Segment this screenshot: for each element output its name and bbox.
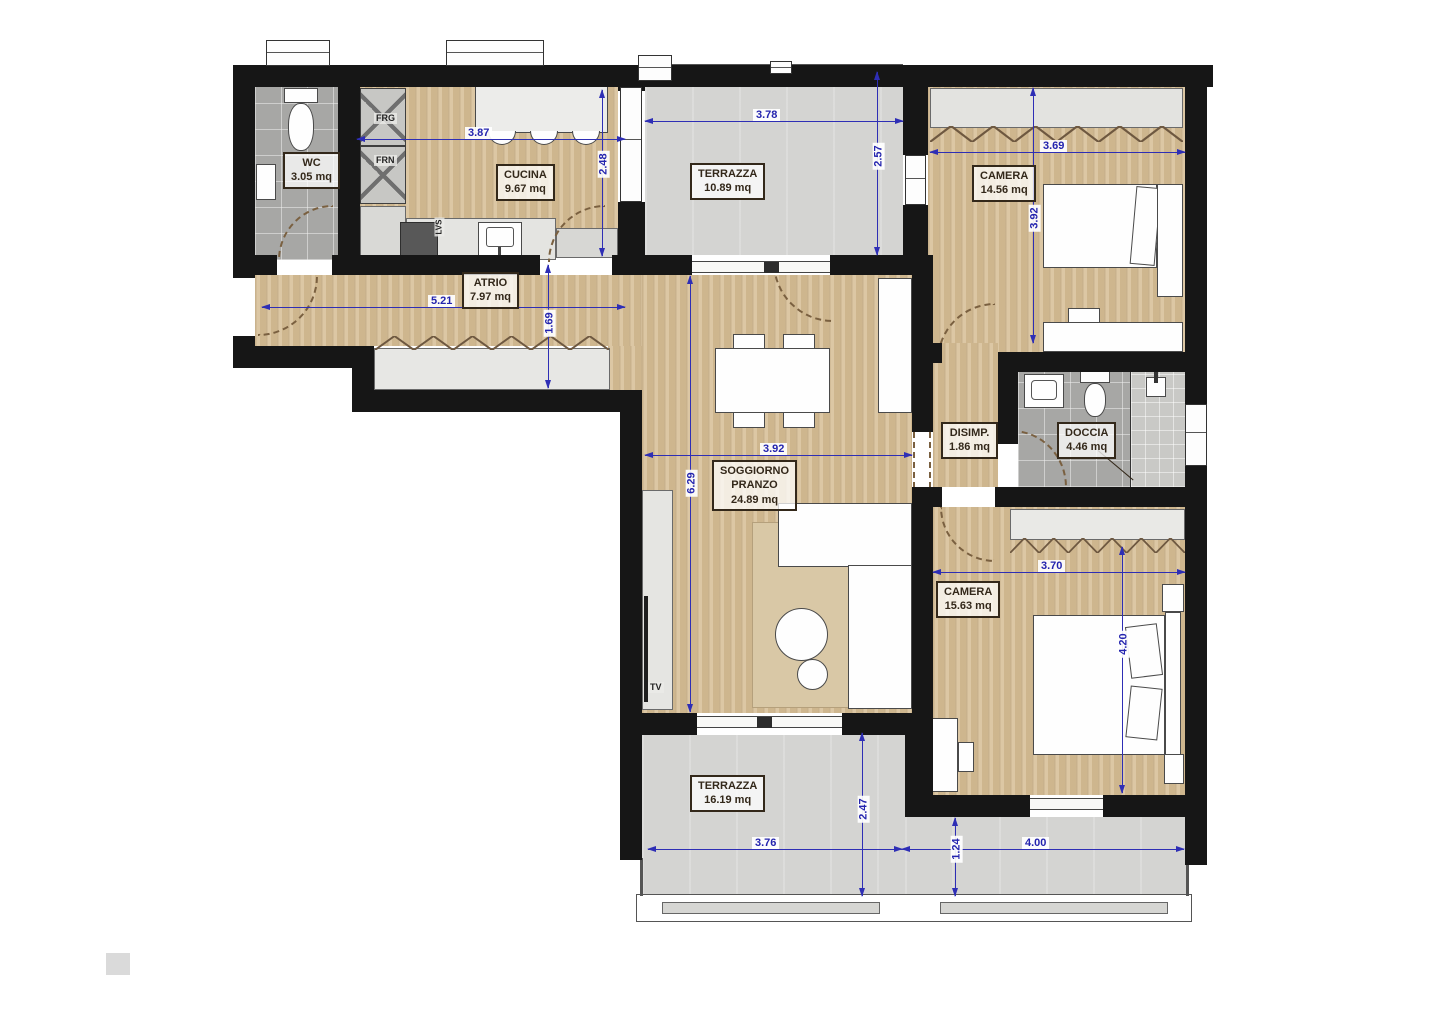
- room-label-soggiorno: SOGGIORNO PRANZO 24.89 mq: [712, 460, 797, 511]
- room-name: DOCCIA: [1065, 427, 1108, 439]
- wall: [903, 85, 928, 155]
- dim-label: 2.57: [873, 142, 885, 169]
- room-area: 15.63 mq: [945, 600, 992, 612]
- opening-disimpegno: [913, 432, 915, 488]
- wall: [618, 202, 645, 275]
- wall: [998, 352, 1188, 372]
- dim-line: [262, 307, 625, 308]
- dim-label: 3.87: [465, 127, 492, 139]
- wall: [338, 85, 360, 275]
- wall: [912, 488, 933, 735]
- headboard: [1165, 612, 1181, 758]
- railing-post: [640, 858, 643, 896]
- wall: [620, 713, 697, 735]
- dim-line: [645, 455, 912, 456]
- toilet-bowl: [288, 103, 314, 151]
- room-name: ATRIO: [474, 277, 507, 289]
- wall: [233, 65, 1213, 87]
- wall: [620, 390, 642, 860]
- room-name: DISIMP.: [950, 427, 990, 439]
- dim-label: 3.92: [760, 443, 787, 455]
- room-label-atrio: ATRIO 7.97 mq: [462, 272, 519, 309]
- dim-label: 1.24: [951, 835, 963, 862]
- dim-label: 6.29: [686, 469, 698, 496]
- dim-line: [645, 121, 903, 122]
- room-label-terrazza-nord: TERRAZZA 10.89 mq: [690, 163, 765, 200]
- wall: [233, 65, 255, 278]
- glass-door-terrazza-nord: [692, 261, 830, 273]
- dim-label: 4.00: [1022, 837, 1049, 849]
- tv-label: TV: [648, 682, 664, 693]
- oven-label: FRN: [374, 155, 397, 166]
- room-name: WC: [302, 157, 320, 169]
- wall: [995, 487, 1188, 507]
- room-name: TERRAZZA: [698, 168, 757, 180]
- terrazza-sud-floor: [642, 735, 912, 896]
- dim-label: 3.69: [1040, 140, 1067, 152]
- dim-label: 3.78: [753, 109, 780, 121]
- room-name: PRANZO: [731, 479, 777, 491]
- room-name: CAMERA: [980, 170, 1028, 182]
- dim-label: 5.21: [428, 295, 455, 307]
- kitchen-bar-counter: [475, 85, 608, 133]
- cooktop: [400, 222, 438, 258]
- room-area: 3.05 mq: [291, 171, 332, 183]
- wall: [912, 487, 942, 507]
- pillow: [1125, 623, 1163, 679]
- door-mark: [757, 717, 772, 728]
- wall: [1103, 795, 1188, 817]
- dim-label: 3.76: [752, 837, 779, 849]
- dining-chair: [733, 412, 765, 428]
- terrazza-sud-floor-right: [905, 817, 1186, 896]
- floor-plan: FRG FRN LVS TV: [0, 0, 1440, 1018]
- closet-zigzag: [375, 336, 609, 350]
- railing-bar: [940, 902, 1168, 914]
- nightstand: [1164, 754, 1184, 784]
- railing-post: [1186, 863, 1189, 896]
- low-cabinet: [1043, 322, 1183, 352]
- coffee-table: [797, 659, 828, 690]
- room-label-disimpegno: DISIMP. 1.86 mq: [941, 422, 998, 459]
- wall-cabinet: [878, 278, 912, 413]
- dining-chair: [783, 412, 815, 428]
- room-label-wc: WC 3.05 mq: [283, 152, 340, 189]
- dim-label: 2.48: [598, 150, 610, 177]
- window-sill: [770, 61, 792, 74]
- room-label-camera-sud: CAMERA 15.63 mq: [936, 581, 1000, 618]
- room-label-doccia: DOCCIA 4.46 mq: [1057, 422, 1116, 459]
- wall: [233, 255, 277, 275]
- wall: [998, 352, 1018, 444]
- dining-table: [715, 348, 830, 413]
- wall: [352, 390, 642, 412]
- dim-line: [930, 152, 1185, 153]
- camera-nord-wardrobe: [930, 88, 1183, 128]
- headboard: [1157, 184, 1183, 297]
- wall: [830, 255, 933, 275]
- dim-label: 4.20: [1118, 630, 1130, 657]
- closet-zigzag: [1010, 538, 1185, 553]
- room-area: 10.89 mq: [704, 182, 751, 194]
- room-area: 1.86 mq: [949, 441, 990, 453]
- desk-chair: [958, 742, 974, 772]
- desk: [930, 718, 958, 792]
- nightstand: [1162, 584, 1184, 612]
- window: [1185, 404, 1207, 466]
- room-label-terrazza-sud: TERRAZZA 16.19 mq: [690, 775, 765, 812]
- room-area: 16.19 mq: [704, 794, 751, 806]
- toilet-tank: [284, 88, 318, 103]
- dim-line: [902, 849, 1184, 850]
- atrio-floor-sliver: [608, 346, 642, 390]
- dim-line: [357, 139, 625, 140]
- window: [905, 155, 926, 205]
- dim-line: [1122, 547, 1123, 793]
- fridge-label: FRG: [374, 113, 397, 124]
- glass-door-camera-sud: [1030, 798, 1103, 810]
- wall: [905, 795, 1030, 817]
- window: [620, 87, 642, 202]
- toilet-bowl: [1084, 383, 1106, 417]
- disimpegno-floor: [933, 343, 998, 487]
- shower-head-dot: [1154, 371, 1158, 383]
- atrio-closet: [374, 348, 610, 390]
- room-area: 9.67 mq: [505, 183, 546, 195]
- sink: [256, 164, 276, 200]
- wall: [842, 713, 932, 735]
- room-label-camera-nord: CAMERA 14.56 mq: [972, 165, 1036, 202]
- wall: [912, 343, 942, 363]
- room-name: SOGGIORNO: [720, 465, 789, 477]
- wall: [903, 205, 928, 257]
- coffee-table: [775, 608, 828, 661]
- dim-label: 1.69: [544, 309, 556, 336]
- room-area: 14.56 mq: [981, 184, 1028, 196]
- window-sill: [266, 40, 330, 66]
- railing-bar: [662, 902, 880, 914]
- stray-mark: [106, 953, 130, 975]
- sofa-seat: [848, 565, 912, 709]
- room-name: CUCINA: [504, 169, 547, 181]
- window-sill: [638, 55, 672, 81]
- pillow: [1125, 685, 1162, 740]
- dim-label: 3.92: [1029, 204, 1041, 231]
- room-area: 24.89 mq: [731, 494, 778, 506]
- sofa-chaise: [778, 503, 912, 567]
- kitchen-sink-basin: [486, 227, 514, 247]
- dim-label: 3.70: [1038, 560, 1065, 572]
- room-area: 4.46 mq: [1066, 441, 1107, 453]
- sink-basin: [1031, 380, 1057, 400]
- door-mark: [764, 262, 779, 273]
- room-name: TERRAZZA: [698, 780, 757, 792]
- dishwasher-label: LVS: [434, 218, 444, 237]
- opening-disimpegno: [929, 432, 931, 488]
- window-sill: [446, 40, 544, 66]
- dim-line: [933, 572, 1185, 573]
- camera-sud-wardrobe: [1010, 509, 1185, 540]
- dim-label: 2.47: [858, 795, 870, 822]
- room-area: 7.97 mq: [470, 291, 511, 303]
- toilet-tank: [1080, 371, 1110, 383]
- dim-line: [648, 849, 902, 850]
- room-name: CAMERA: [944, 586, 992, 598]
- room-label-cucina: CUCINA 9.67 mq: [496, 164, 555, 201]
